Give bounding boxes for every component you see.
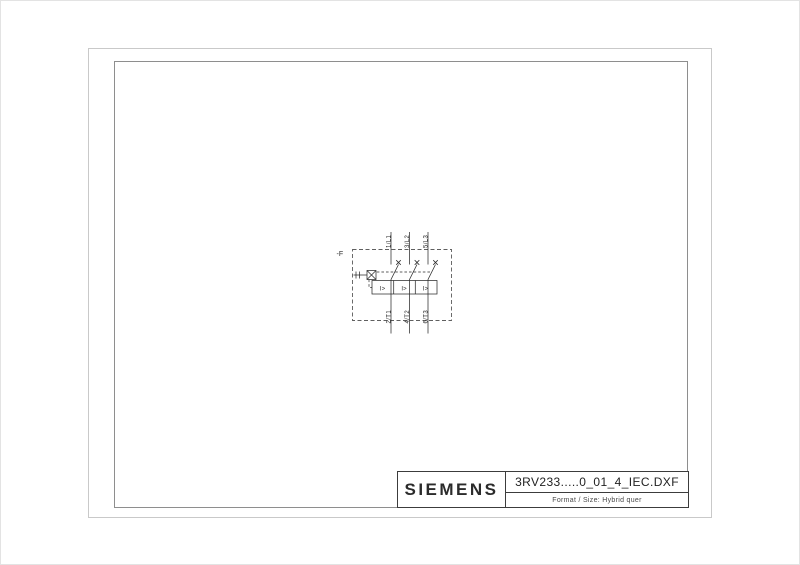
terminal-label-top: 1/L1 [387,234,393,248]
format-size-label: Format / Size: Hybrid quer [552,497,642,504]
terminal-label-top: 3/L2 [405,234,411,248]
terminal-label-bottom: 4/T2 [405,310,411,324]
drawing-filename: 3RV233.....0_01_4_IEC.DXF [515,475,679,489]
trip-unit-box: I> I> I> [372,281,437,295]
pole-2: 3/L2 4/T2 [405,232,419,334]
terminal-label-bottom: 6/T3 [424,310,430,324]
device-tag-label: -F [337,251,344,258]
breaker-function-x-icon [396,260,401,265]
drawing-page: -F 1/L1 2/T1 [0,0,800,565]
trip-symbol: I> [380,287,386,293]
pole-3: 5/L3 6/T3 [424,232,438,334]
actuator-trip-connector-line [369,280,372,288]
terminal-label-bottom: 2/T1 [387,310,393,324]
filename-row: 3RV233.....0_01_4_IEC.DXF [506,472,688,493]
trip-symbol: I> [423,287,429,293]
breaker-function-x-icon [415,260,420,265]
terminal-label-top: 5/L3 [424,234,430,248]
manual-actuator-icon [354,271,377,280]
format-row: Format / Size: Hybrid quer [506,493,688,507]
title-block: SIEMENS 3RV233.....0_01_4_IEC.DXF Format… [397,471,689,508]
circuit-diagram: -F 1/L1 2/T1 [331,223,461,341]
trip-symbol: I> [401,287,407,293]
drawing-info-cell: 3RV233.....0_01_4_IEC.DXF Format / Size:… [506,472,688,507]
siemens-logo: SIEMENS [404,480,498,500]
brand-cell: SIEMENS [398,472,506,507]
breaker-function-x-icon [433,260,438,265]
